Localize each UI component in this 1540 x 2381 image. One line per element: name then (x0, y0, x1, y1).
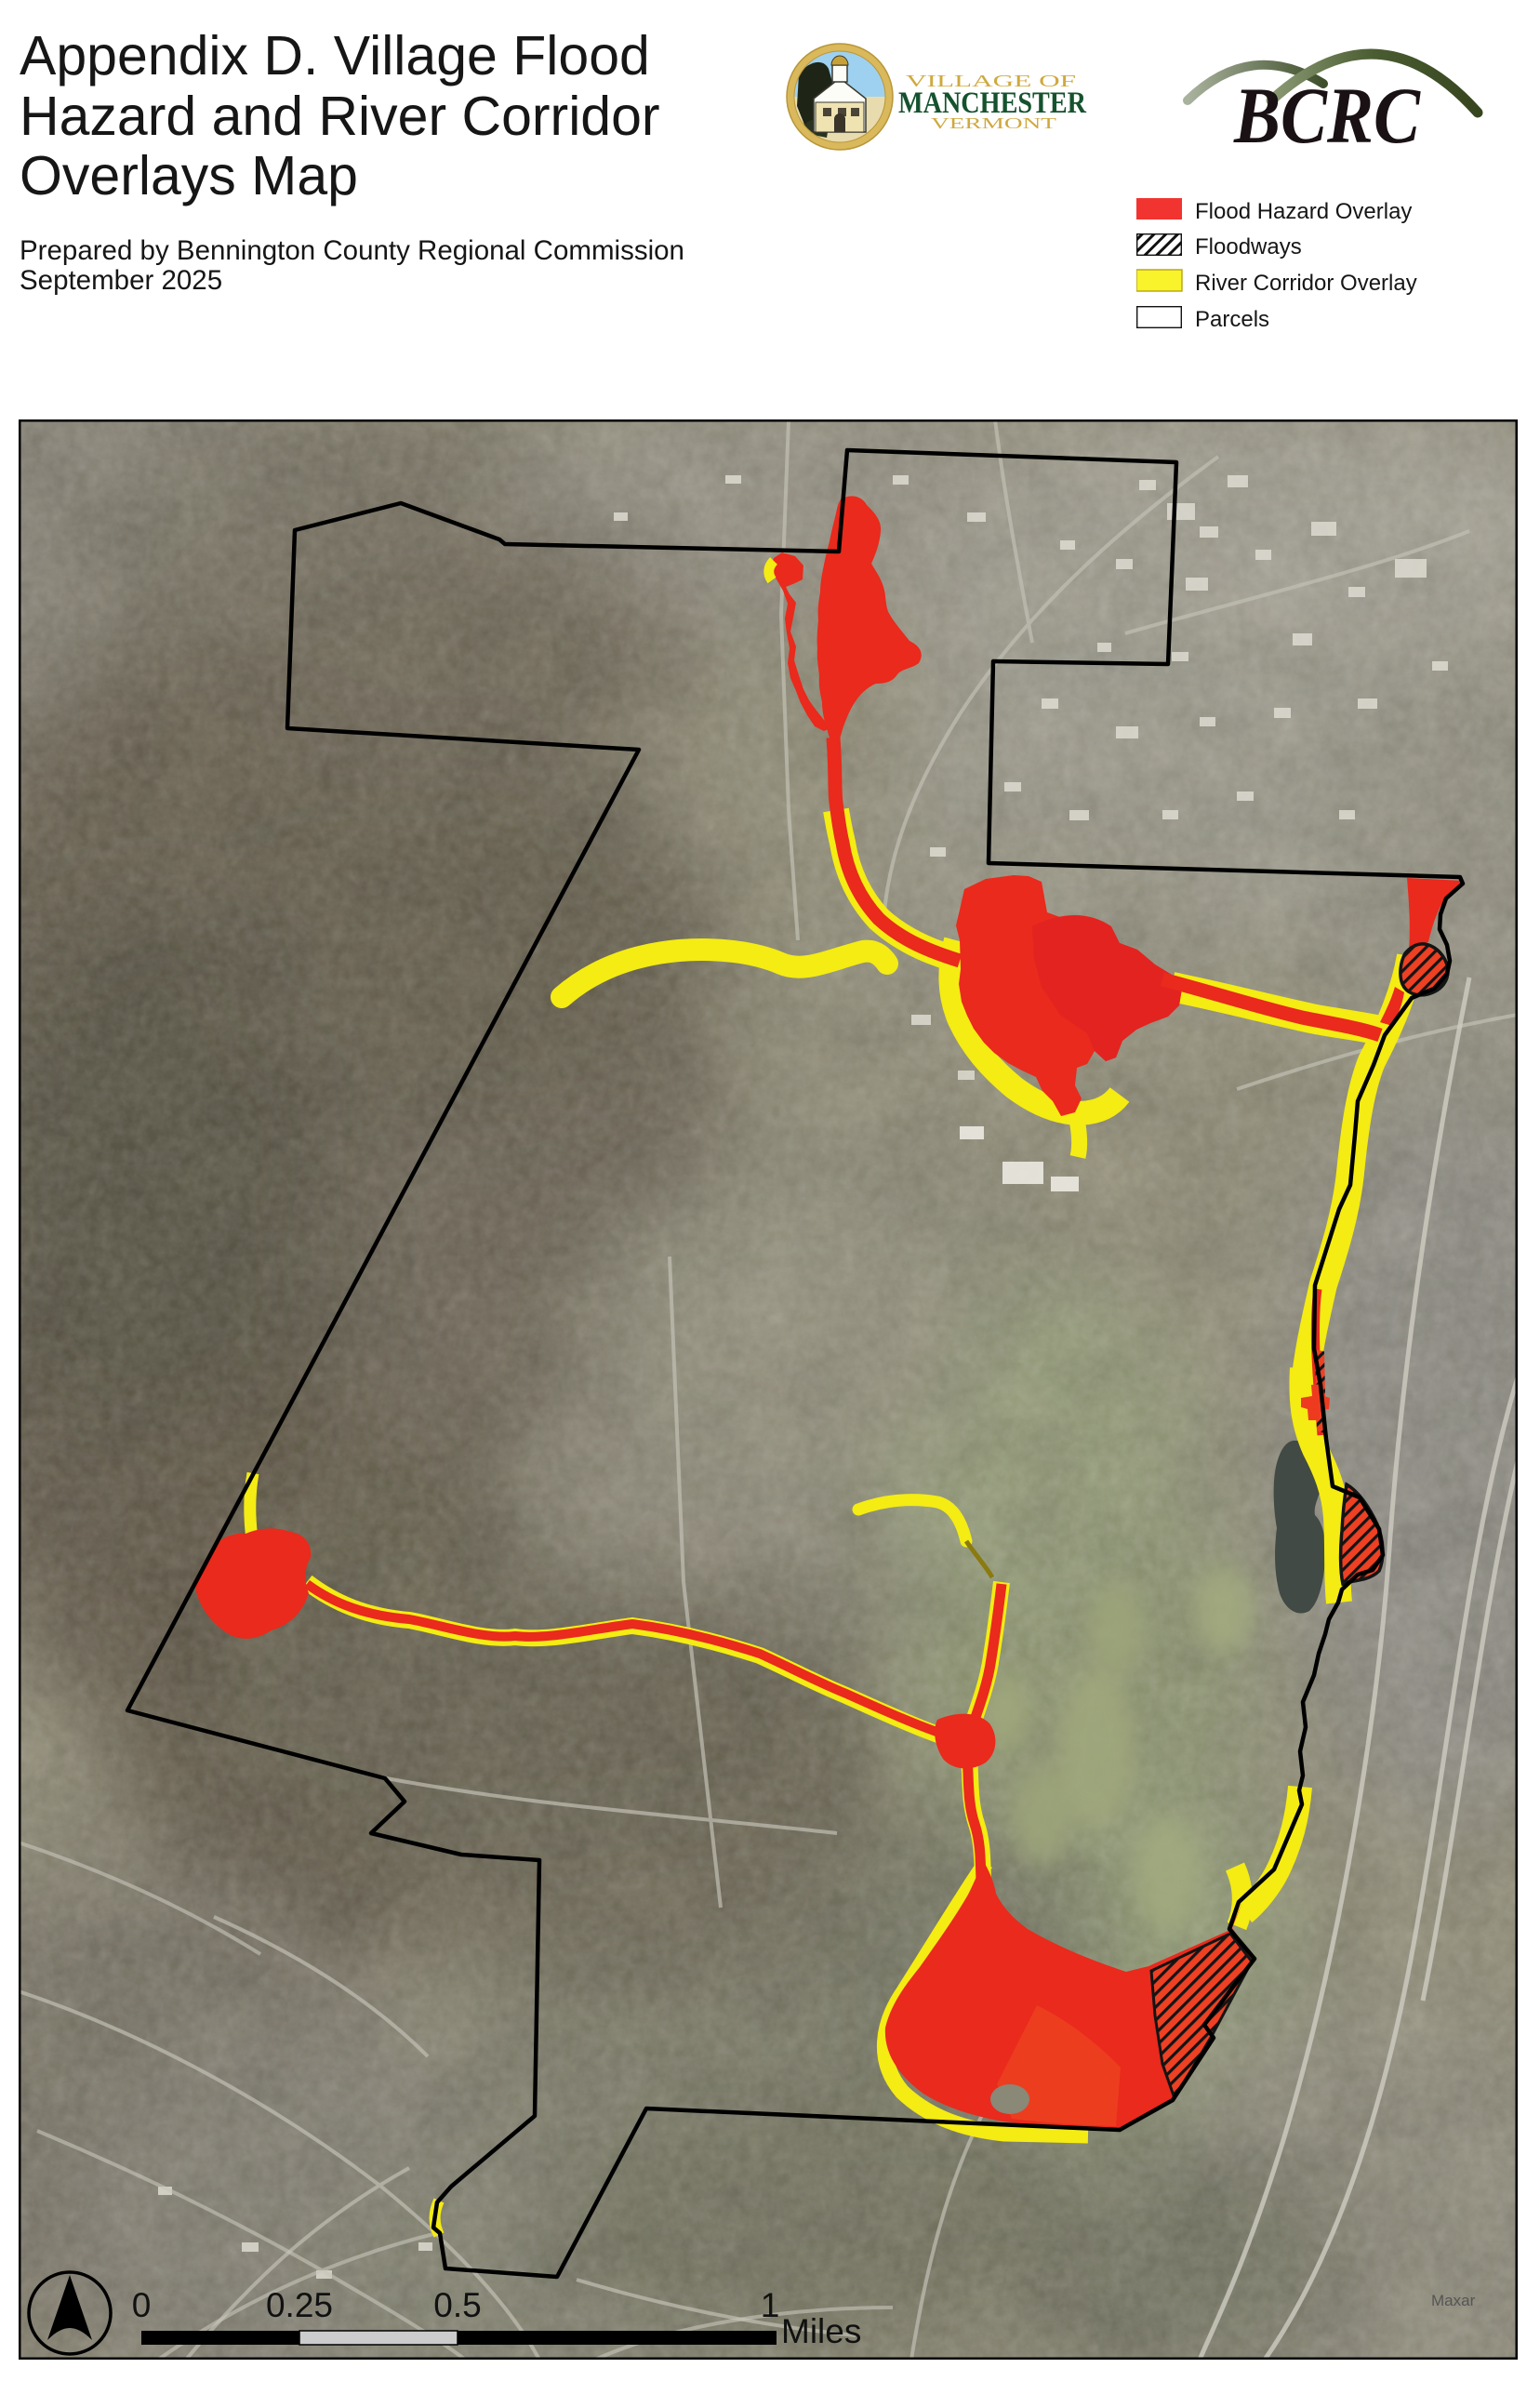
svg-text:River Corridor Overlay: River Corridor Overlay (1195, 271, 1417, 296)
svg-text:Parcels: Parcels (1195, 307, 1269, 332)
svg-text:Maxar: Maxar (1431, 2292, 1476, 2309)
svg-text:VERMONT: VERMONT (931, 114, 1056, 132)
svg-text:0.5: 0.5 (433, 2286, 481, 2324)
svg-text:Flood Hazard Overlay: Flood Hazard Overlay (1195, 199, 1412, 224)
svg-text:BCRC: BCRC (1233, 71, 1421, 158)
svg-text:Miles: Miles (781, 2312, 861, 2350)
svg-text:0: 0 (132, 2286, 152, 2324)
svg-text:0.25: 0.25 (266, 2286, 333, 2324)
svg-text:1: 1 (761, 2286, 780, 2324)
svg-text:Floodways: Floodways (1195, 234, 1302, 259)
